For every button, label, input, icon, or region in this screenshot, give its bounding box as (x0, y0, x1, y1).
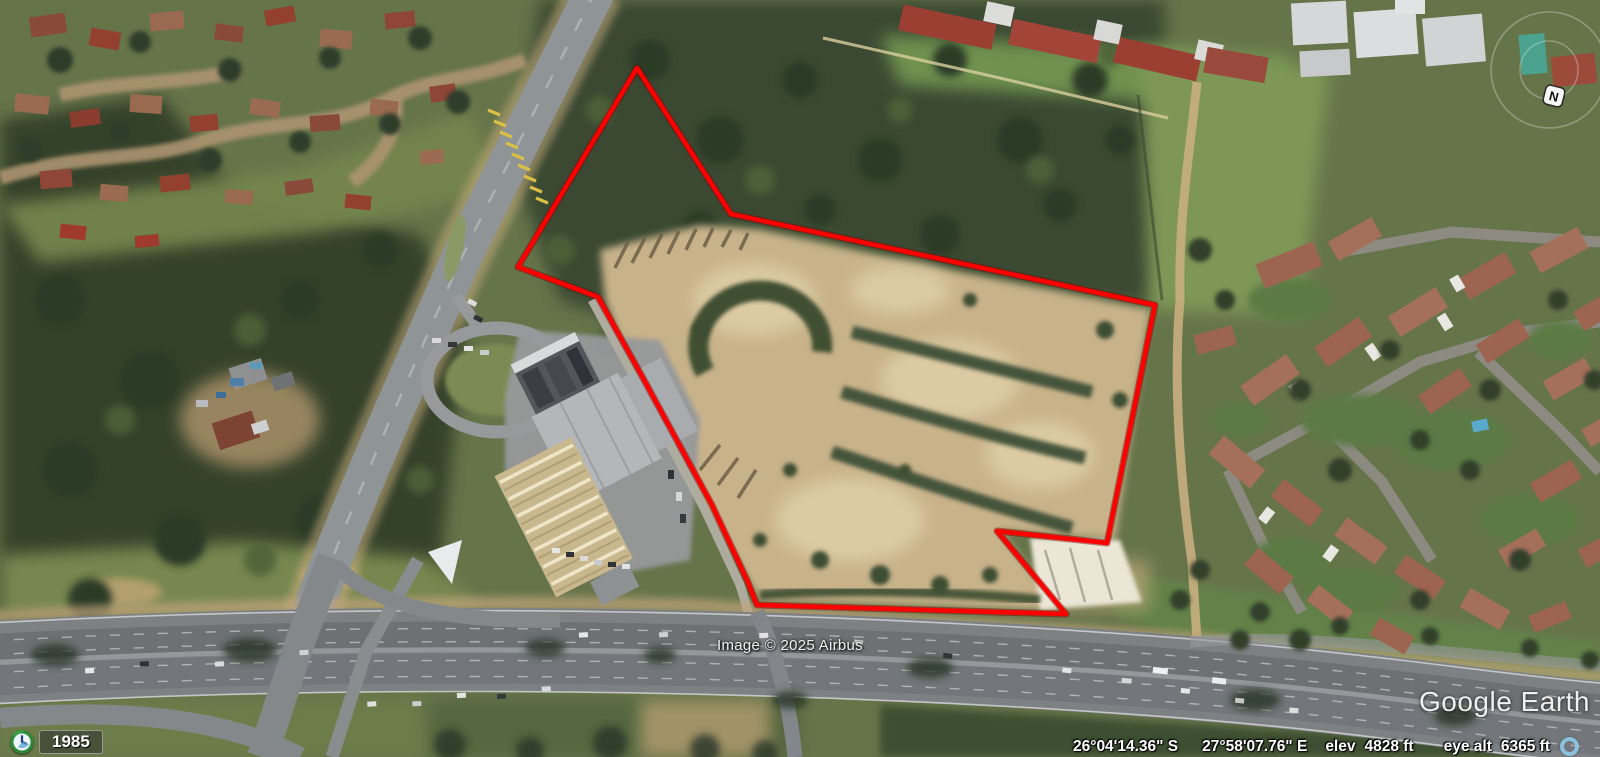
imagery-credit: Image © 2025 Airbus (660, 637, 920, 654)
historical-imagery-indicator[interactable]: 1985 (10, 730, 103, 754)
imagery-year-badge[interactable]: 1985 (39, 730, 103, 754)
historical-imagery-clock-icon (10, 730, 34, 754)
google-earth-logo: Google Earth (1419, 686, 1590, 718)
eye-altitude-label: eye alt (1444, 738, 1492, 756)
elevation-label: elev (1325, 738, 1355, 756)
eye-altitude-value: 6365 ft (1501, 738, 1550, 756)
latitude-readout: 26°04'14.36" S (1073, 738, 1178, 756)
streaming-progress-icon (1560, 737, 1579, 756)
elevation-value: 4828 ft (1364, 738, 1413, 756)
longitude-readout: 27°58'07.76" E (1202, 738, 1307, 756)
google-earth-viewport[interactable]: Image © 2025 Airbus Google Earth N 1985 … (0, 0, 1600, 757)
status-bar: 26°04'14.36" S 27°58'07.76" E elev 4828 … (1073, 737, 1579, 756)
